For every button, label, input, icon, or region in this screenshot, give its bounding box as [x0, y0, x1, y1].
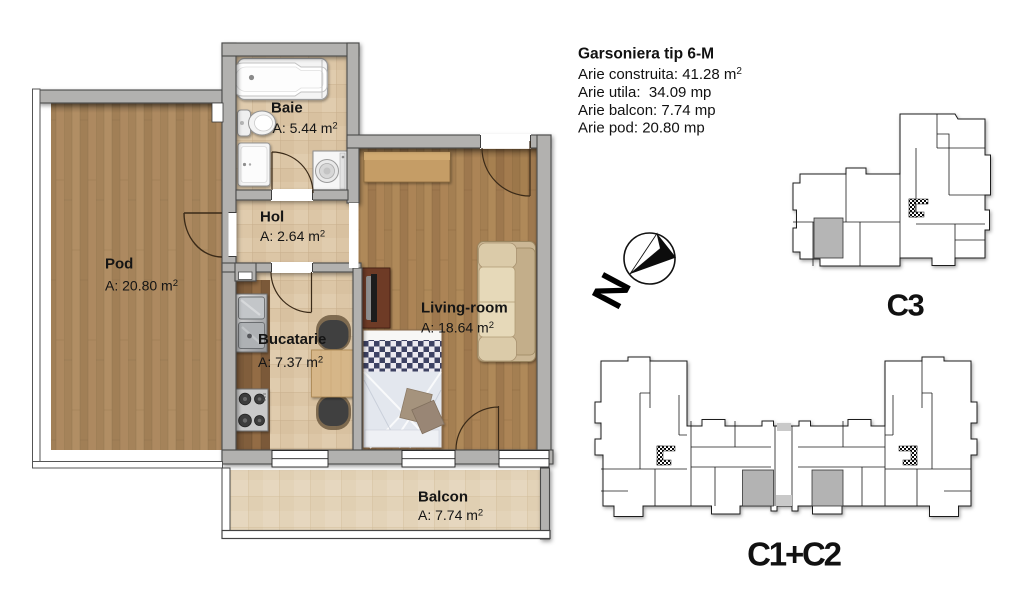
svg-text:Baie: Baie [271, 100, 303, 117]
svg-text:Living-room: Living-room [421, 300, 508, 317]
svg-text:Hol: Hol [260, 209, 284, 226]
svg-text:Arie balcon: 7.74 mp: Arie balcon: 7.74 mp [578, 102, 716, 119]
svg-text:A: 2.64 m2: A: 2.64 m2 [260, 228, 325, 244]
svg-text:Arie construita: 41.28 m2: Arie construita: 41.28 m2 [578, 66, 742, 83]
svg-text:A: 5.44 m2: A: 5.44 m2 [273, 120, 338, 136]
svg-text:Garsoniera tip 6-M: Garsoniera tip 6-M [578, 46, 714, 63]
svg-text:A: 20.80 m2: A: 20.80 m2 [105, 278, 178, 294]
svg-text:Pod: Pod [105, 256, 133, 273]
svg-text:C1+C2: C1+C2 [747, 536, 841, 573]
svg-text:C3: C3 [887, 288, 925, 323]
svg-text:A: 7.37 m2: A: 7.37 m2 [258, 354, 323, 370]
svg-text:Balcon: Balcon [418, 489, 468, 506]
svg-text:A: 7.74 m2: A: 7.74 m2 [418, 507, 483, 523]
svg-text:Bucatarie: Bucatarie [258, 331, 326, 348]
svg-text:Arie utila: 34.09 mp: Arie utila: 34.09 mp [578, 84, 711, 101]
svg-text:Arie pod: 20.80 mp: Arie pod: 20.80 mp [578, 120, 705, 137]
svg-text:A: 18.64 m2: A: 18.64 m2 [421, 320, 494, 336]
